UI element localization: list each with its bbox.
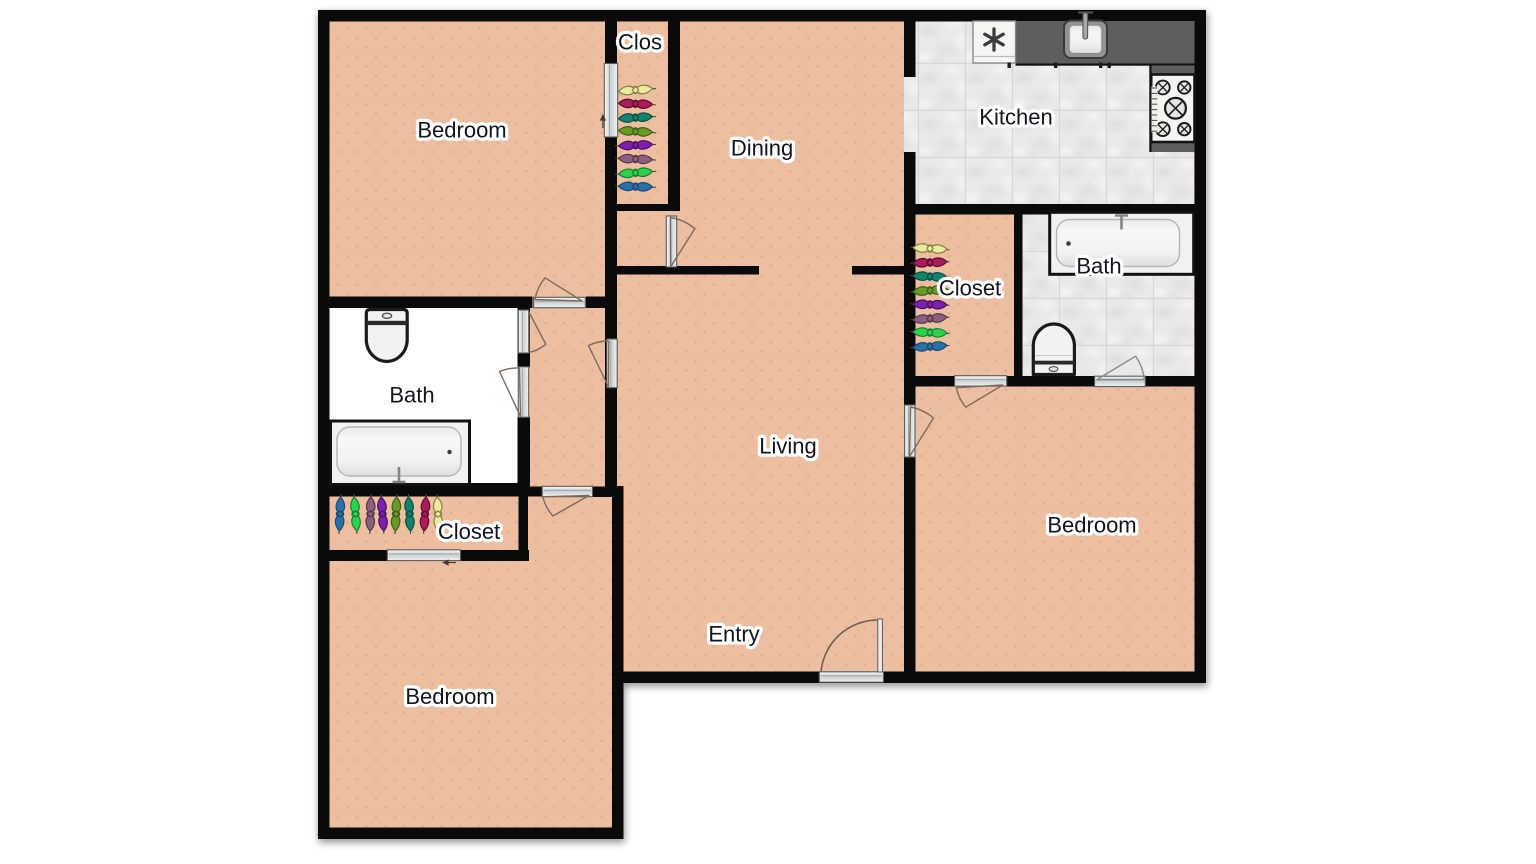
svg-text:Bedroom: Bedroom xyxy=(405,684,494,709)
svg-text:Dining: Dining xyxy=(731,136,793,161)
svg-text:Entry: Entry xyxy=(708,622,759,647)
svg-text:Bedroom: Bedroom xyxy=(1047,513,1136,538)
svg-text:Living: Living xyxy=(759,434,816,459)
svg-text:Closet: Closet xyxy=(939,276,1001,301)
svg-text:Kitchen: Kitchen xyxy=(979,105,1052,130)
svg-text:Bath: Bath xyxy=(1076,254,1121,279)
svg-text:Clos: Clos xyxy=(618,30,662,55)
svg-text:Bedroom: Bedroom xyxy=(417,118,506,143)
svg-text:Bath: Bath xyxy=(389,383,434,408)
svg-text:Closet: Closet xyxy=(438,519,500,544)
